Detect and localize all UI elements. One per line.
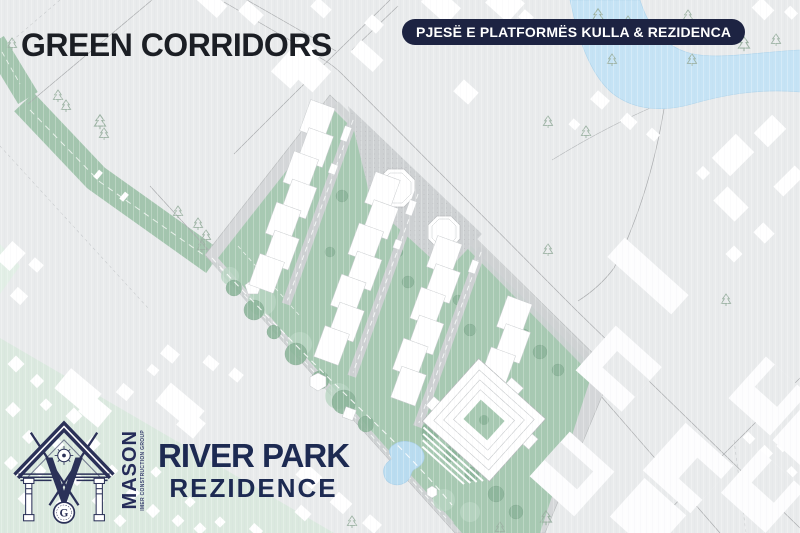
project-name: RIVER PARK — [158, 439, 349, 474]
mason-logo-icon: G — [12, 414, 116, 526]
project-subtitle: REZIDENCE — [169, 474, 337, 503]
poster: GREEN CORRIDORS PJESË E PLATFORMËS KULLA… — [0, 0, 800, 533]
brand-block: G MASON IMER CONSTRUCTION GROUP RIVER PA… — [12, 414, 349, 526]
platform-badge: PJESË E PLATFORMËS KULLA & REZIDENCA — [402, 19, 745, 45]
company-name: MASON — [120, 430, 140, 509]
page-title: GREEN CORRIDORS — [21, 29, 332, 61]
company-tagline: IMER CONSTRUCTION GROUP — [140, 430, 147, 511]
project-title-block: RIVER PARK REZIDENCE — [158, 414, 349, 526]
emblem-monogram: G — [60, 508, 69, 520]
company-name-vertical: MASON IMER CONSTRUCTION GROUP — [116, 414, 150, 526]
